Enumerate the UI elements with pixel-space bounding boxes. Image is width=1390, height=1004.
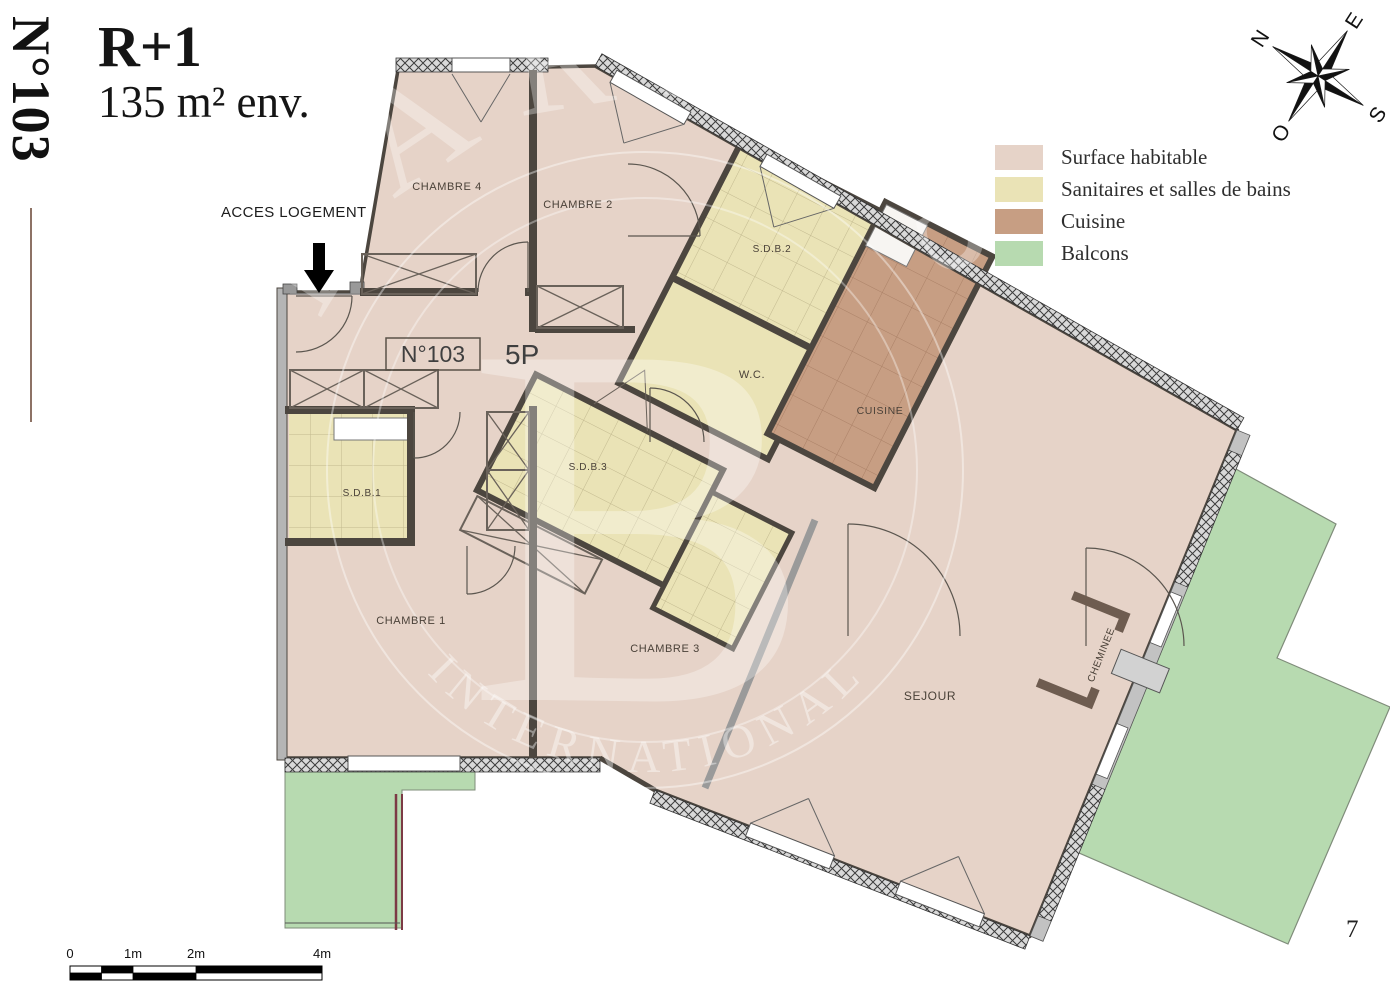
- unit-number: N°103: [401, 341, 465, 367]
- label-chambre3: CHAMBRE 3: [630, 643, 700, 655]
- compass-n: N: [1247, 26, 1275, 51]
- scale-tick-2: 2m: [187, 946, 205, 961]
- label-chambre1: CHAMBRE 1: [376, 615, 446, 627]
- legend-item-balcons: Balcons: [995, 240, 1291, 266]
- scale-tick-1: 1m: [124, 946, 142, 961]
- sheet-unit-number: N°103: [0, 16, 62, 163]
- room-sdb1: [289, 414, 411, 540]
- legend-swatch-surface: [995, 145, 1043, 170]
- label-sdb1: S.D.B.1: [343, 488, 382, 499]
- scale-tick-0: 0: [66, 946, 73, 961]
- legend-swatch-cuisine: [995, 209, 1043, 234]
- legend: Surface habitable Sanitaires et salles d…: [995, 144, 1291, 272]
- floor-plan-page: B BARNES INTERNATIONAL CHAMBRE 4 CHAMBRE…: [0, 0, 1390, 1004]
- legend-swatch-balcons: [995, 241, 1043, 266]
- scale-bar: 0 1m 2m 4m: [66, 946, 331, 980]
- unit-box: N°103 5P: [386, 338, 539, 370]
- surface-area-title: 135 m² env.: [98, 80, 310, 125]
- balcony-bottom-left: [285, 760, 475, 930]
- label-sdb3: S.D.B.3: [569, 462, 608, 473]
- compass-e: E: [1341, 9, 1368, 33]
- side-rule: [30, 208, 32, 422]
- legend-label-sanitaires: Sanitaires et salles de bains: [1061, 177, 1291, 202]
- unit-type: 5P: [505, 339, 539, 370]
- compass-s: S: [1365, 103, 1390, 127]
- legend-item-surface: Surface habitable: [995, 144, 1291, 170]
- label-cuisine: CUISINE: [857, 405, 904, 417]
- label-wc: W.C.: [739, 369, 765, 381]
- scale-tick-3: 4m: [313, 946, 331, 961]
- compass-o: O: [1267, 120, 1295, 146]
- legend-label-cuisine: Cuisine: [1061, 209, 1125, 234]
- label-chambre2: CHAMBRE 2: [543, 199, 613, 211]
- legend-label-surface: Surface habitable: [1061, 145, 1207, 170]
- legend-swatch-sanitaires: [995, 177, 1043, 202]
- legend-item-sanitaires: Sanitaires et salles de bains: [995, 176, 1291, 202]
- label-sejour: SEJOUR: [904, 689, 956, 703]
- label-chambre4: CHAMBRE 4: [412, 181, 482, 193]
- floor-level-title: R+1: [98, 18, 202, 76]
- page-number: 7: [1346, 916, 1359, 944]
- legend-item-cuisine: Cuisine: [995, 208, 1291, 234]
- access-label: ACCES LOGEMENT: [221, 204, 367, 221]
- label-sdb2: S.D.B.2: [753, 244, 792, 255]
- legend-label-balcons: Balcons: [1061, 241, 1129, 266]
